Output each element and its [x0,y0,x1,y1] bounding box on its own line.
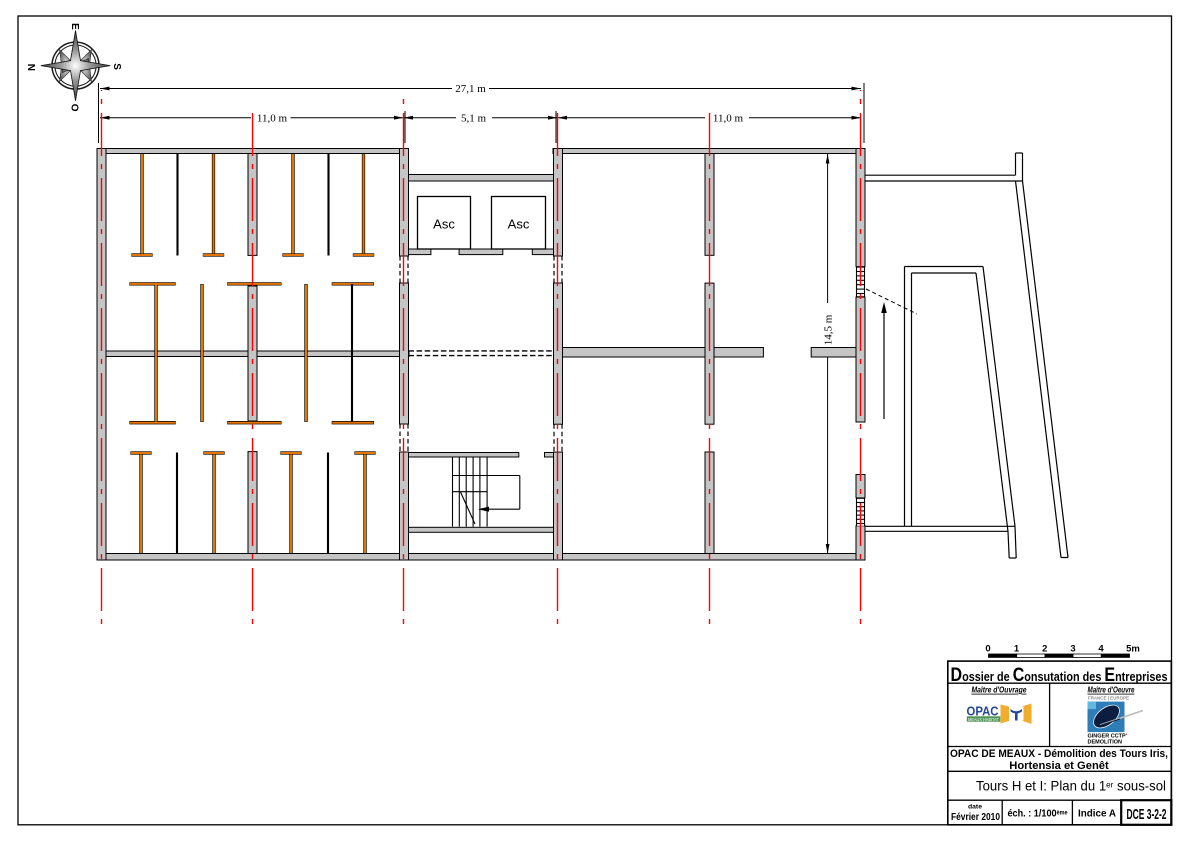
svg-text:4: 4 [1098,644,1104,655]
svg-text:14,5 m: 14,5 m [823,314,835,345]
svg-text:OPAC DE MEAUX - Démolition des: OPAC DE MEAUX - Démolition des Tours Iri… [950,748,1168,760]
svg-text:Février 2010: Février 2010 [951,812,1000,823]
svg-text:27,1 m: 27,1 m [455,83,486,95]
svg-text:N: N [25,64,36,71]
svg-text:Hortensia et Genêt: Hortensia et Genêt [1009,760,1109,772]
svg-text:O: O [69,104,80,112]
svg-text:date: date [968,804,982,811]
svg-text:Indice A: Indice A [1078,809,1117,820]
svg-text:Asc: Asc [433,217,455,232]
svg-text:Asc: Asc [508,217,530,232]
svg-text:11,0 m: 11,0 m [713,112,744,124]
svg-text:DCE 3-2-2: DCE 3-2-2 [1127,806,1167,823]
svg-text:FRANCE | EUROPE: FRANCE | EUROPE [1088,696,1129,701]
svg-text:Maître d'Oeuvre: Maître d'Oeuvre [1088,686,1135,695]
svg-text:MEAUX HABITAT: MEAUX HABITAT [968,717,999,722]
svg-text:1: 1 [1014,644,1020,655]
svg-text:Maître d'Ouvrage: Maître d'Ouvrage [972,686,1027,695]
svg-text:S: S [111,63,122,70]
svg-text:2: 2 [1042,644,1047,655]
svg-text:5m: 5m [1126,644,1140,655]
svg-text:DEMOLITION: DEMOLITION [1088,740,1123,746]
svg-text:Tours H et I: Plan du 1er sous: Tours H et I: Plan du 1er sous-sol [976,779,1166,794]
svg-text:3: 3 [1070,644,1075,655]
svg-text:11,0 m: 11,0 m [257,112,288,124]
svg-text:E: E [69,23,80,30]
svg-text:0: 0 [985,644,990,655]
svg-text:5,1 m: 5,1 m [461,112,487,124]
